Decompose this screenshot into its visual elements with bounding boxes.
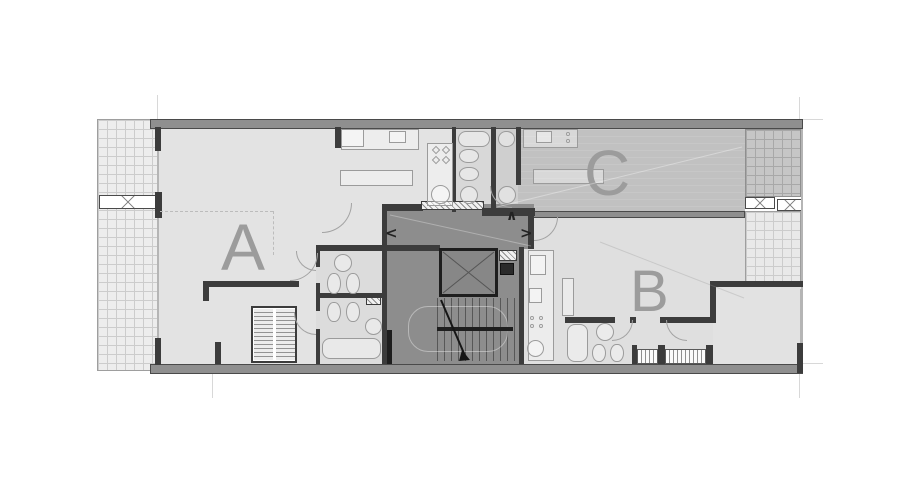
bidet xyxy=(346,302,360,322)
sink xyxy=(365,318,382,335)
terrace-divider-x-left xyxy=(745,197,775,209)
kitchen-b-fridge xyxy=(530,255,546,275)
unit-b-label: B xyxy=(630,263,669,321)
suite-right-wall xyxy=(382,249,387,364)
terrace-divider-x-right xyxy=(777,199,803,211)
sink xyxy=(460,186,478,204)
shaft-box xyxy=(499,250,517,261)
projection-line-v xyxy=(273,211,274,255)
ref-tick xyxy=(803,363,823,364)
b-rear-room-top-wall xyxy=(710,281,803,287)
suite-left-wall-3 xyxy=(316,329,320,364)
core-right-wall xyxy=(519,247,524,364)
a-west-wall-stub-1 xyxy=(155,127,161,151)
ref-tick xyxy=(799,374,800,398)
unit-a-label: A xyxy=(221,214,265,280)
burner-dot xyxy=(539,324,543,328)
toilet xyxy=(327,273,341,294)
a-west-wall-stub-3 xyxy=(155,338,161,365)
shaft-box-dark xyxy=(500,263,514,275)
suite-top-wall xyxy=(316,245,387,251)
bidet xyxy=(346,273,360,294)
burner-dot xyxy=(566,139,570,143)
ref-tick xyxy=(799,97,800,119)
a-bottom-wall-stub xyxy=(215,342,221,364)
terrace-right-c-grid xyxy=(745,129,801,197)
terrace-left-planter xyxy=(99,195,157,209)
kitchen-b-sink xyxy=(527,340,544,357)
elevator xyxy=(439,248,498,297)
ref-tick xyxy=(157,95,158,119)
window-post xyxy=(658,345,665,364)
wardrobe-cell xyxy=(254,309,273,360)
suite-shelf xyxy=(366,297,381,305)
arrow-left-icon: < xyxy=(385,226,398,241)
ref-tick xyxy=(803,119,823,120)
shower-tray xyxy=(498,131,515,147)
bidet xyxy=(459,167,479,181)
kitchen-a-sink-round xyxy=(431,185,450,204)
a-west-window-1 xyxy=(157,151,159,192)
hall-top-wall-left xyxy=(385,204,423,211)
wardrobe-cell xyxy=(276,309,295,360)
a-wardrobe xyxy=(251,306,297,363)
burner-dot xyxy=(530,324,534,328)
b-column-cabinet xyxy=(562,278,574,316)
arrow-right-icon: > xyxy=(520,226,533,241)
floor-plan-canvas: A C B ∧ < > xyxy=(0,0,905,490)
top-exterior-wall xyxy=(150,119,803,129)
a-bedroom-wall-stub xyxy=(203,281,209,301)
terrace-right-b-grid xyxy=(745,211,801,283)
arrow-up-icon: ∧ xyxy=(506,209,517,223)
core-left-wall-lower xyxy=(387,330,392,364)
burner-dot xyxy=(539,316,543,320)
bath-c-right-wall xyxy=(516,127,521,185)
bottom-exterior-wall xyxy=(150,364,803,374)
bathtub xyxy=(567,324,588,362)
bidet xyxy=(610,344,624,362)
b-bath-top-wall xyxy=(565,317,615,323)
window-post xyxy=(706,345,713,364)
kitchen-a-island xyxy=(340,170,413,186)
a-west-window-2 xyxy=(157,218,159,338)
burner-dot xyxy=(530,316,534,320)
shower-tray xyxy=(458,131,490,147)
toilet xyxy=(592,344,606,362)
core-top-wall-left xyxy=(382,245,440,251)
kitchen-b-hob xyxy=(529,288,542,303)
window-sill xyxy=(637,349,658,364)
window-sill xyxy=(665,349,706,364)
a-west-wall-stub-2 xyxy=(155,192,162,218)
terrace-left-grid xyxy=(97,119,158,371)
b-rear-room-corner-wall xyxy=(797,343,803,373)
bathtub xyxy=(322,338,381,359)
kitchen-a-sink xyxy=(389,131,406,143)
burner-dot xyxy=(566,132,570,136)
toilet xyxy=(327,302,341,322)
stair-rail xyxy=(437,327,513,331)
unit-c-label: C xyxy=(584,141,630,205)
b-rear-room-window xyxy=(800,289,803,343)
unit-c-bottom-wall xyxy=(533,211,745,218)
kitchen-a-cabinet xyxy=(341,129,364,147)
kitchen-c-sink xyxy=(536,131,552,143)
sink xyxy=(334,254,352,272)
ref-tick xyxy=(212,374,213,398)
unit-b-rear-room-floor xyxy=(713,287,803,364)
toilet xyxy=(459,149,479,163)
